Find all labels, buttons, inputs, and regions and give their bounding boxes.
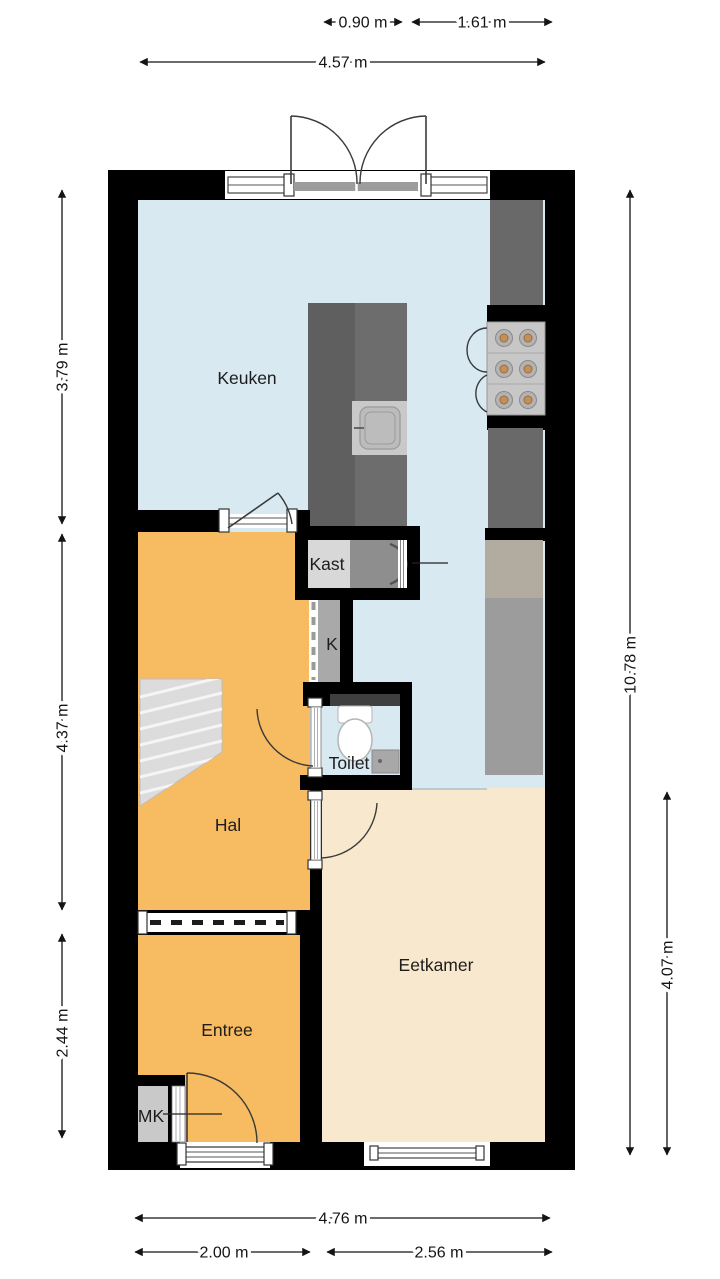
counter-bottom-section — [488, 428, 543, 532]
dim-bottom-256: 2.56 m — [327, 1245, 552, 1262]
svg-text:2.56 m: 2.56 m — [415, 1245, 464, 1262]
svg-text:2.44 m: 2.44 m — [55, 1009, 72, 1058]
eetkamer-window — [364, 1142, 490, 1166]
tall-cabinet — [485, 598, 543, 775]
kast-vent — [398, 540, 407, 588]
counter-top-section — [490, 200, 543, 305]
room-toilet-label: Toilet — [329, 753, 370, 773]
wall-stub-above-fridge — [485, 528, 545, 541]
dim-bottom-476: 4.76 m — [135, 1211, 550, 1228]
svg-text:2.00 m: 2.00 m — [200, 1245, 249, 1262]
room-keuken-label: Keuken — [217, 368, 276, 388]
dim-left-437: 4.37 m — [55, 534, 72, 910]
hal-entree-wall — [108, 910, 322, 935]
kitchen-island — [308, 303, 407, 527]
toilet-sink — [372, 750, 399, 773]
kast-washer — [350, 540, 398, 588]
wall-entree-eetkamer — [300, 935, 322, 1142]
svg-text:1.61 m: 1.61 m — [458, 15, 507, 32]
dim-right-1078: 10.78 m — [623, 190, 640, 1155]
room-hal-label: Hal — [215, 815, 241, 835]
svg-text:4.57 m: 4.57 m — [319, 55, 368, 72]
dim-top-161: 1.61 m — [412, 15, 552, 32]
dim-top-090: 0.90 m — [324, 15, 402, 32]
svg-text:4.76 m: 4.76 m — [319, 1211, 368, 1228]
top-entrance — [225, 116, 490, 199]
dim-bottom-200: 2.00 m — [135, 1245, 310, 1262]
dim-left-379: 3.79 m — [55, 190, 72, 524]
room-k-label: K — [326, 634, 338, 654]
room-kast-label: Kast — [309, 554, 344, 574]
toilet-cistern-band — [330, 694, 402, 706]
fridge — [485, 540, 543, 598]
room-mk-label: MK — [138, 1106, 165, 1126]
room-eetkamer-label: Eetkamer — [399, 955, 474, 975]
toilet-sink-faucet — [378, 759, 382, 763]
wall-keuken-hal-left — [108, 510, 222, 532]
dim-left-244: 2.44 m — [55, 934, 72, 1138]
svg-text:10.78 m: 10.78 m — [623, 636, 640, 694]
room-entree-label: Entree — [201, 1020, 253, 1040]
svg-text:4.07 m: 4.07 m — [660, 941, 677, 990]
svg-text:0.90 m: 0.90 m — [339, 15, 388, 32]
floorplan-page: Keuken Kast K Toilet Hal Entree MK Eetka… — [0, 0, 720, 1279]
sink-bowl — [360, 407, 400, 449]
dim-right-407: 4.07 m — [660, 792, 677, 1155]
dim-top-457: 4.57 m — [140, 55, 545, 72]
floorplan-svg: Keuken Kast K Toilet Hal Entree MK Eetka… — [0, 0, 720, 1279]
svg-text:3.79 m: 3.79 m — [55, 343, 72, 392]
svg-text:4.37 m: 4.37 m — [55, 704, 72, 753]
